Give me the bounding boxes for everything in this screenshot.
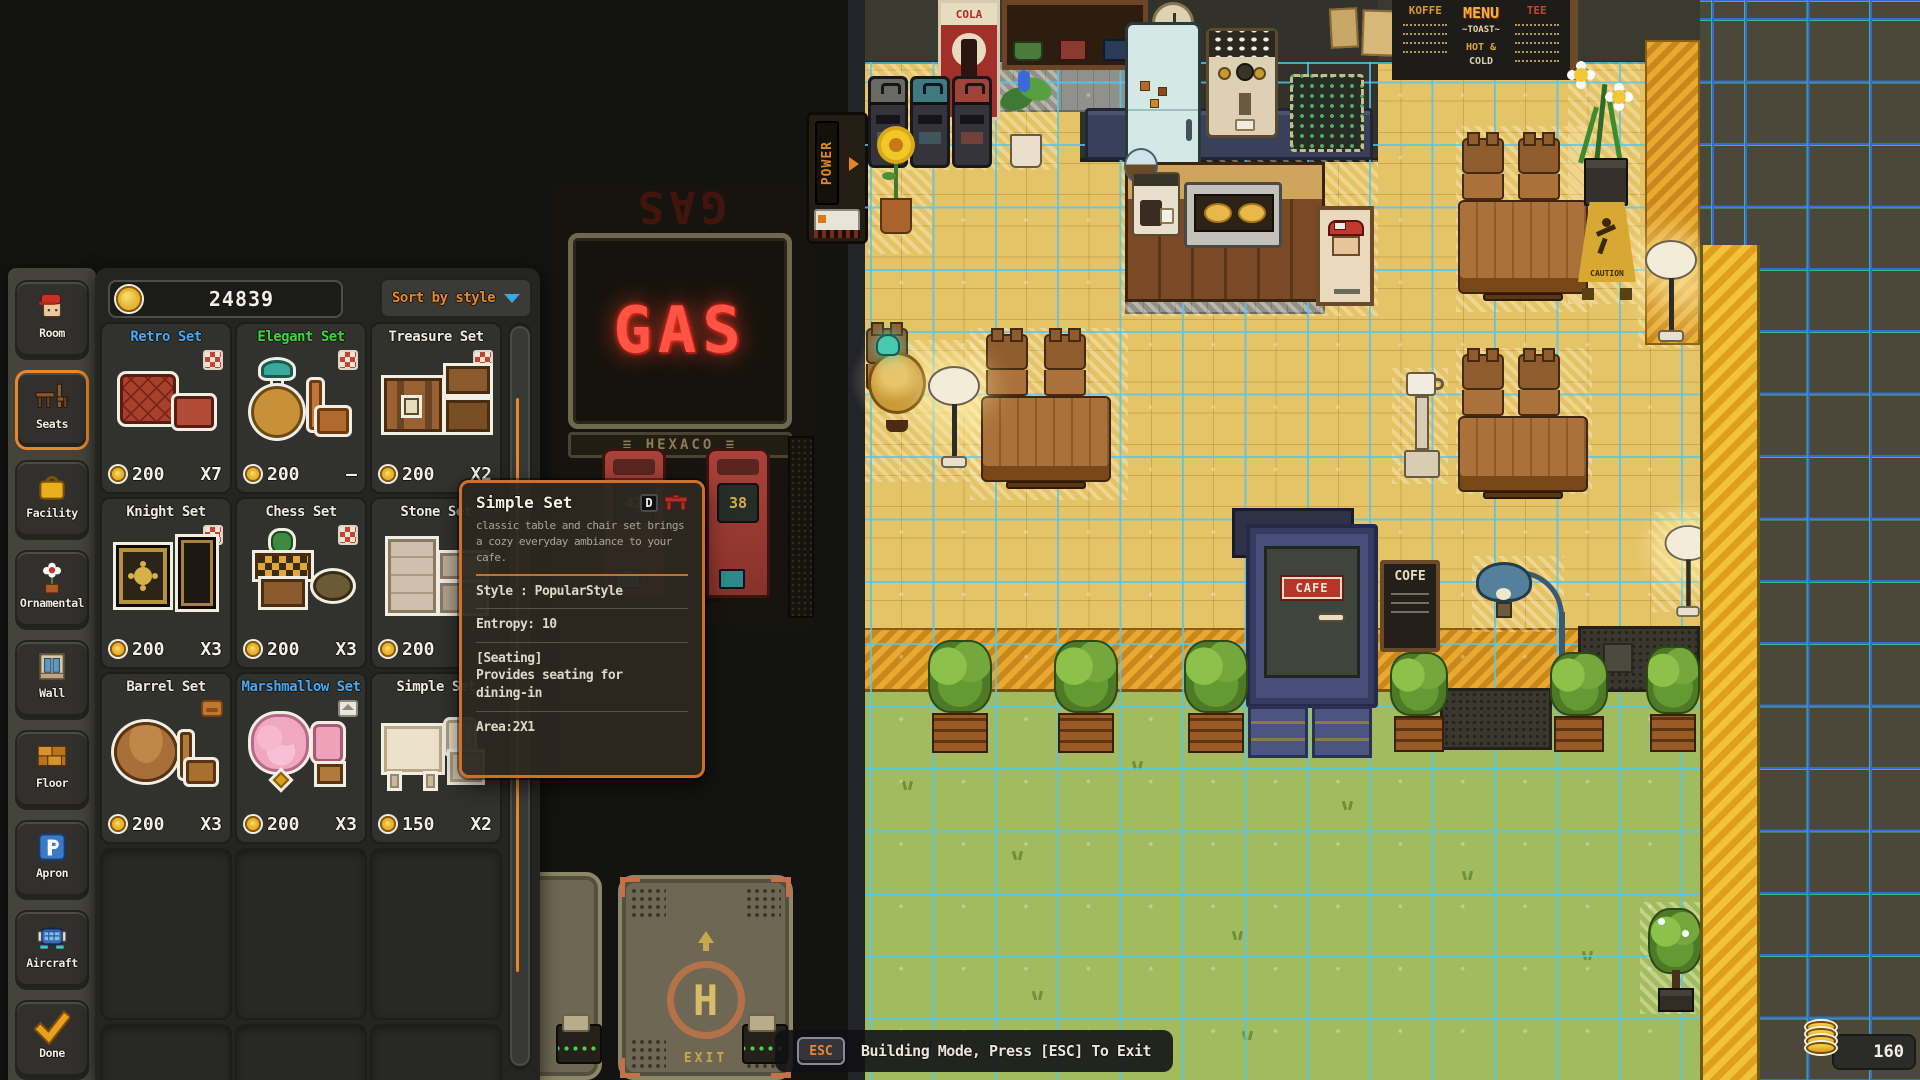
chess-set-art — [247, 531, 359, 631]
game-world[interactable]: COLA KOFFE MENU ~TOAST~ HOT & — [848, 0, 1700, 1080]
empty-shop-slot — [235, 1024, 367, 1080]
currency-amount: 24839 — [142, 287, 341, 311]
apron-icon — [34, 829, 70, 865]
staff-poster — [1316, 206, 1374, 306]
pad-connector — [556, 1024, 602, 1064]
shop-item-elegant-set[interactable]: Elegant Set 200– — [235, 322, 367, 494]
tooltip-entropy: Entropy: 10 — [476, 616, 688, 634]
tooltip-title: Simple Set — [476, 493, 572, 512]
cofe-board: COFE — [1380, 560, 1440, 652]
sidebar-item-wall[interactable]: Wall — [15, 640, 89, 720]
tooltip-category-desc: Provides seating for dining-in — [476, 667, 666, 702]
sidebar-item-label: Ornamental — [20, 596, 84, 610]
parrot-plant — [996, 70, 1056, 170]
chair — [1518, 138, 1560, 202]
shop-item-barrel-set[interactable]: Barrel Set 200X3 — [100, 672, 232, 844]
bush-planter — [1184, 640, 1248, 758]
menu-col3-title: TEE — [1527, 4, 1547, 17]
power-label: POWER — [820, 141, 835, 185]
caution-sign: CAUTION — [1578, 202, 1636, 300]
trash-bin-red — [952, 76, 992, 168]
gold-lamp-table — [868, 352, 926, 426]
coin-amount: 160 — [1873, 1042, 1904, 1062]
sidebar-item-label: Floor — [36, 776, 68, 790]
seats-icon — [34, 380, 70, 416]
building-mode-message: Building Mode, Press [ESC] To Exit — [861, 1042, 1151, 1060]
chair — [1462, 138, 1504, 202]
knight-set-art — [112, 531, 224, 631]
item-tooltip: Simple Set D classic table and chair set… — [459, 480, 705, 778]
chair — [1518, 354, 1560, 418]
table-icon — [664, 494, 688, 512]
menu-cold: COLD — [1469, 56, 1493, 67]
divider — [476, 574, 688, 576]
shop-item-marshmallow-set[interactable]: Marshmallow Set 200X3 — [235, 672, 367, 844]
menu-hot: HOT & — [1466, 42, 1496, 53]
shop-item-knight-set[interactable]: Knight Set 200X3 — [100, 497, 232, 669]
sidebar-item-label: Aircraft — [26, 956, 77, 970]
barrel-set-art — [112, 706, 224, 806]
mug-dispenser — [1398, 372, 1446, 480]
menu-chalkboard: KOFFE MENU ~TOAST~ HOT & COLD TEE — [1392, 0, 1578, 80]
flower-plant — [1568, 50, 1642, 206]
divider — [476, 608, 688, 609]
empty-shop-slot — [100, 1024, 232, 1080]
dining-table — [981, 396, 1111, 482]
floor-lamp — [928, 366, 980, 468]
sidebar-item-label: Done — [39, 1046, 65, 1060]
currency-display: 24839 — [108, 280, 343, 318]
floor-lamp — [1645, 240, 1697, 342]
coin-counter: 160 — [1832, 1034, 1916, 1070]
dining-table — [1458, 200, 1588, 294]
room-icon — [34, 289, 70, 325]
cola-label: COLA — [941, 3, 997, 25]
sort-dropdown[interactable]: Sort by style — [380, 278, 532, 318]
exit-arrow-icon — [698, 931, 714, 943]
facility-icon — [34, 469, 70, 505]
bush-planter — [1054, 640, 1118, 758]
coin-stack-icon — [1806, 1026, 1842, 1076]
empty-shop-slot — [100, 848, 232, 1020]
sidebar-item-ornamental[interactable]: Ornamental — [15, 550, 89, 630]
tooltip-area: Area:2X1 — [476, 719, 688, 737]
cafe-sign: CAFE — [1280, 575, 1344, 601]
cafe-door: CAFE — [1246, 524, 1378, 708]
helipad-letter: H — [693, 976, 718, 1025]
chair — [986, 334, 1028, 398]
sunflower-pot — [872, 128, 920, 236]
sidebar-item-label: Room — [39, 326, 65, 340]
sidebar-item-label: Wall — [39, 686, 65, 700]
chevron-down-icon — [504, 294, 520, 303]
retro-set-art — [112, 356, 224, 456]
pump-right-number: 38 — [717, 483, 759, 523]
floor-lamp — [1665, 525, 1700, 617]
sidebar-item-facility[interactable]: Facility — [15, 460, 89, 540]
sidebar-item-label: Seats — [36, 417, 68, 431]
menu-col1-title: KOFFE — [1409, 4, 1442, 17]
chair — [1462, 354, 1504, 418]
sidebar-item-done[interactable]: Done — [15, 1000, 89, 1080]
bush-planter — [1550, 652, 1608, 756]
menu-col2-title: MENU — [1463, 4, 1499, 22]
cofe-board-title: COFE — [1384, 569, 1436, 584]
chair — [1044, 334, 1086, 398]
bush-planter — [928, 640, 992, 758]
gas-sign-board: GAS — [568, 233, 792, 429]
bush-planter — [1390, 652, 1448, 756]
tooltip-description: classic table and chair set brings a coz… — [476, 518, 688, 566]
empty-shop-slot — [235, 848, 367, 1020]
done-check-icon — [34, 1009, 70, 1045]
aircraft-icon — [34, 919, 70, 955]
category-sidebar: Room Seats Facility Ornamental Wall Floo… — [8, 268, 96, 1080]
espresso-machine — [1206, 28, 1278, 138]
caution-label: CAUTION — [1578, 269, 1636, 278]
marshmallow-set-art — [247, 706, 359, 806]
sidebar-item-apron[interactable]: Apron — [15, 820, 89, 900]
elegant-set-art — [247, 356, 359, 456]
shop-item-treasure-set[interactable]: Treasure Set 200X2 — [370, 322, 502, 494]
tooltip-style: Style : PopularStyle — [476, 583, 688, 601]
tooltip-category: [Seating] — [476, 650, 688, 668]
sidebar-item-room[interactable]: Room — [15, 280, 89, 360]
menu-toast: ~TOAST~ — [1462, 25, 1500, 35]
toaster-oven — [1184, 182, 1282, 248]
grade-badge: D — [640, 494, 658, 512]
potted-tree — [1646, 908, 1700, 1012]
gas-sign-reflection: GAS — [590, 182, 770, 232]
game-screen: COLA KOFFE MENU ~TOAST~ HOT & — [0, 0, 1920, 1080]
pos-screen — [1290, 74, 1364, 152]
ornamental-icon — [34, 559, 70, 595]
empty-shop-slot — [370, 1024, 502, 1080]
outer-wall-strip — [1700, 245, 1760, 1080]
wall-icon — [34, 649, 70, 685]
sidebar-item-label: Facility — [26, 506, 77, 520]
gas-pump-right: 38 — [706, 448, 770, 598]
sort-label: Sort by style — [392, 290, 495, 306]
treasure-set-art — [382, 356, 494, 456]
shop-item-chess-set[interactable]: Chess Set 200X3 — [235, 497, 367, 669]
coin-icon — [116, 286, 142, 312]
coffee-maker — [1132, 172, 1180, 236]
sidebar-item-floor[interactable]: Floor — [15, 730, 89, 810]
divider — [476, 642, 688, 643]
sidebar-item-aircraft[interactable]: Aircraft — [15, 910, 89, 990]
power-vending-machine: POWER — [806, 112, 868, 244]
esc-key-icon: ESC — [797, 1037, 845, 1065]
dining-table — [1458, 416, 1588, 492]
shop-item-retro-set[interactable]: Retro Set 200X7 — [100, 322, 232, 494]
wall-notes — [1330, 6, 1400, 60]
divider — [476, 711, 688, 712]
floor-icon — [34, 739, 70, 775]
gas-sign-text: GAS — [613, 294, 747, 368]
sidebar-item-label: Apron — [36, 866, 68, 880]
building-mode-bar: ESC Building Mode, Press [ESC] To Exit — [775, 1030, 1173, 1072]
bush-planter — [1646, 646, 1700, 756]
empty-shop-slot — [370, 848, 502, 1020]
door-base-panels — [1246, 706, 1378, 760]
sidebar-item-seats[interactable]: Seats — [15, 370, 89, 450]
